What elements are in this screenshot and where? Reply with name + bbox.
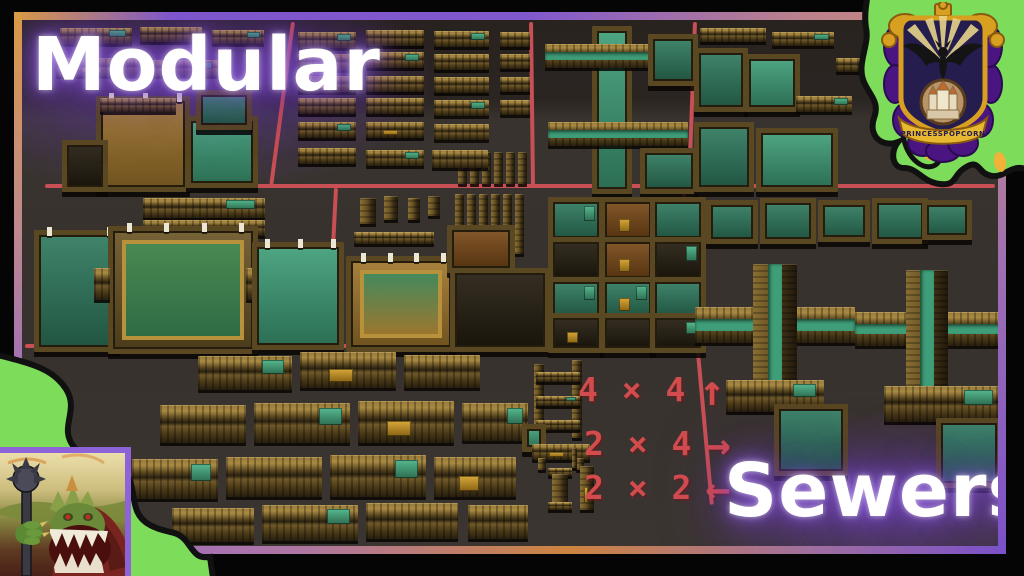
sewer-module [360, 198, 376, 224]
sewer-module [366, 503, 458, 539]
arrow-up-icon: ↑ [699, 366, 726, 415]
sewer-module [506, 152, 515, 184]
sewer-module [300, 352, 396, 388]
sewer-module [94, 268, 110, 300]
thumbnail-canvas: 4 × 4↑ 2 × 4→ 2 × 2← Modular Sewers [0, 0, 1024, 576]
sewer-module [500, 54, 530, 69]
sewer-module [538, 458, 546, 470]
sewer-module [500, 32, 530, 47]
crest-banner-text: PRINCESSPOPCORN [901, 130, 986, 138]
sewer-module [366, 122, 424, 138]
sewer-module [518, 152, 527, 184]
sewer-module [648, 34, 698, 86]
title-modular: Modular [32, 28, 381, 102]
sewer-module [143, 198, 265, 218]
sewer-module [760, 198, 816, 244]
sewer-module [548, 313, 604, 353]
sewer-module [404, 355, 480, 388]
sewer-module [753, 264, 797, 392]
monster-artwork [0, 447, 131, 576]
sewer-module [298, 122, 356, 138]
legend-row-2x2: 2 × 2← [584, 464, 733, 513]
legend-size-label: 2 × 2 [584, 468, 693, 507]
sewer-module [108, 226, 258, 354]
sewer-module [462, 403, 528, 441]
heraldic-crest-icon: PRINCESSPOPCORN [881, 2, 1005, 164]
sewer-module [640, 148, 698, 194]
sewer-module [700, 28, 766, 42]
sewer-module [434, 54, 489, 70]
sewer-module [262, 505, 358, 541]
legend-row-4x4: 4 × 4↑ [578, 366, 727, 415]
sewer-module [572, 448, 577, 468]
sewer-module [226, 457, 322, 497]
sewer-module [744, 54, 800, 112]
sewer-module [450, 268, 550, 352]
sewer-module [434, 77, 489, 93]
sewer-module [884, 386, 998, 422]
sewer-module [706, 200, 758, 244]
sewer-module [772, 32, 834, 46]
sewer-module [330, 455, 426, 497]
sewer-module [428, 196, 440, 216]
sewer-module [500, 100, 530, 115]
legend-size-label: 4 × 4 [578, 370, 687, 409]
sewer-module [62, 140, 108, 192]
sewer-module [694, 122, 754, 192]
sewer-module [434, 31, 489, 47]
sewer-module [434, 457, 516, 497]
sewer-module [252, 242, 344, 350]
sewer-module [500, 77, 530, 92]
sewer-module [536, 396, 580, 406]
sewer-module [548, 502, 572, 510]
sewer-module [434, 124, 489, 140]
legend-row-2x4: 2 × 4→ [584, 420, 733, 469]
sewer-module [447, 225, 515, 273]
sewer-module [366, 150, 424, 166]
sewer-module [358, 401, 454, 443]
sewer-module [552, 474, 568, 504]
sewer-module [354, 232, 434, 244]
sewer-module [756, 128, 838, 192]
sewer-module [432, 150, 488, 168]
title-sewers: Sewers [724, 454, 998, 528]
sewer-module [408, 198, 420, 220]
sewer-module [434, 100, 489, 116]
legend-size-label: 2 × 4 [584, 424, 693, 463]
sewer-module [298, 148, 356, 164]
sewer-module [254, 403, 350, 443]
sewer-module [346, 256, 456, 352]
sewer-module [536, 372, 580, 382]
sewer-module [600, 313, 656, 353]
sewer-module [906, 270, 948, 392]
sewer-module [468, 505, 528, 539]
sewer-module [548, 122, 688, 146]
sewer-module [515, 194, 524, 254]
sewer-module [694, 48, 748, 112]
sewer-module [384, 196, 398, 220]
sewer-module [494, 152, 503, 184]
